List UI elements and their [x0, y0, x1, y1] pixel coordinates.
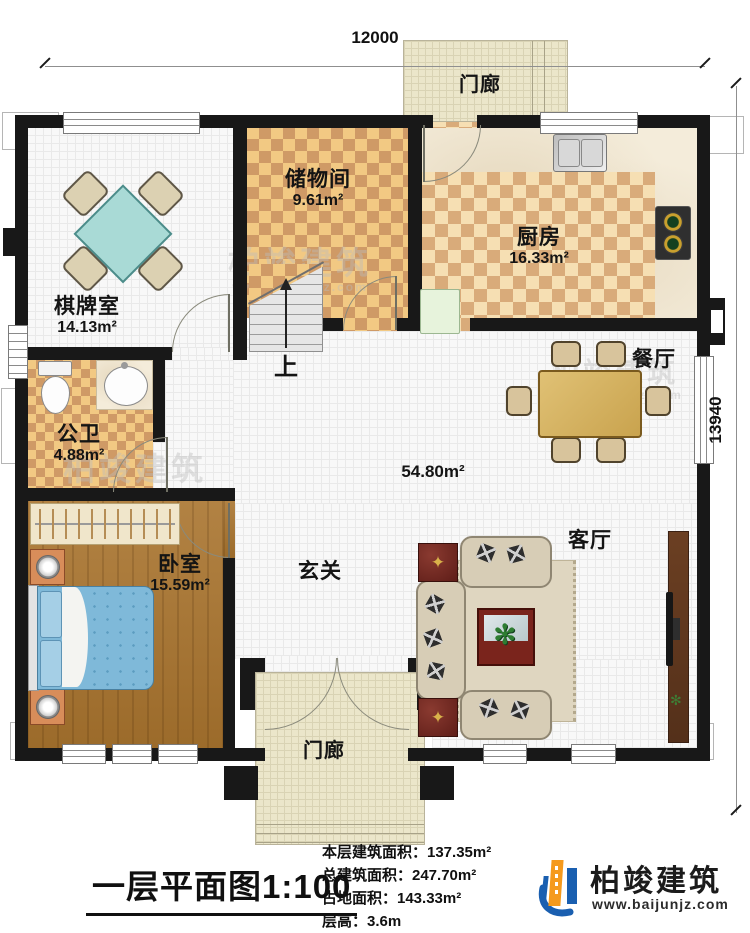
room-label-foyer: 玄关	[289, 560, 351, 584]
porch-column	[224, 766, 258, 800]
company-logo-url: www.baijunjz.com	[592, 896, 729, 912]
door-leaf	[228, 503, 230, 558]
plant-icon: ✻	[670, 692, 682, 709]
stairs-up-label: 上	[266, 354, 306, 382]
closet-hangers	[30, 503, 180, 545]
porch-step-lines	[532, 41, 533, 121]
dining-table	[538, 370, 642, 438]
company-logo-icon	[536, 854, 584, 918]
window	[8, 325, 28, 379]
door-leaf	[423, 125, 425, 182]
sofa	[460, 536, 552, 588]
chair	[551, 341, 581, 367]
kitchen-sink	[553, 134, 607, 172]
bed-pillow	[40, 640, 62, 687]
porch-steps	[256, 816, 424, 844]
sofa	[460, 690, 552, 740]
tv	[666, 592, 673, 666]
fridge	[420, 289, 460, 334]
nightstand	[30, 549, 65, 585]
wall	[15, 115, 28, 761]
stat-total-area: 总建筑面积：247.70m²	[322, 864, 491, 887]
window	[112, 744, 152, 764]
door-leaf	[228, 294, 230, 352]
plant-icon: ✻	[493, 618, 516, 651]
nightstand	[30, 689, 65, 725]
stairs-up-arrow	[285, 290, 287, 348]
window	[483, 744, 527, 764]
window	[62, 744, 106, 764]
room-label-chess: 棋牌室 14.13m²	[32, 295, 142, 338]
bed-sheet	[62, 587, 88, 687]
dimension-line-top	[45, 66, 705, 67]
compass-star-icon: ✦	[431, 553, 445, 572]
burner	[663, 212, 683, 232]
compass-star-icon: ✦	[431, 708, 445, 727]
chair	[645, 386, 671, 416]
hangers	[39, 509, 173, 539]
wall-pilaster	[3, 228, 15, 256]
window	[158, 744, 198, 764]
sink-basin	[558, 139, 580, 167]
stove	[655, 206, 691, 260]
room-label-porch-bottom: 门廊	[291, 740, 357, 763]
coffee-table: ✻	[477, 608, 535, 666]
window	[63, 112, 200, 134]
stat-floor-height: 层高：3.6m	[322, 910, 491, 933]
room-label-porch-top: 门廊	[447, 74, 513, 97]
hall-area-label: 54.80m²	[383, 462, 483, 482]
porch-step-lines	[544, 41, 545, 121]
plan-title: 一层平面图1:100	[86, 860, 357, 916]
wall	[153, 360, 165, 442]
dimension-tick	[699, 57, 710, 68]
wall	[408, 748, 710, 761]
sofa-pillow	[427, 662, 446, 681]
dimension-value-right: 13940	[706, 380, 726, 460]
wall	[233, 115, 247, 360]
tv-bracket	[673, 618, 680, 640]
room-label-living: 客厅	[558, 529, 622, 553]
window	[571, 744, 616, 764]
company-logo-name: 柏竣建筑	[590, 856, 722, 900]
door-leaf	[166, 437, 168, 492]
bed-blanket	[88, 587, 151, 687]
room-label-dining: 餐厅	[622, 348, 686, 372]
wall	[322, 318, 343, 331]
stat-footprint-area: 占地面积：143.33m²	[322, 887, 491, 910]
wall	[240, 658, 255, 710]
door-leaf	[395, 276, 397, 330]
lamp	[36, 695, 60, 719]
hall-floor	[165, 360, 233, 503]
floor-plan-page: 柏竣建筑 www.baijunjz.com 柏竣建筑 www.baijunjz.…	[0, 0, 750, 933]
sink-basin	[581, 139, 603, 167]
side-table: ✦	[418, 543, 458, 582]
room-label-bath: 公卫 4.88m²	[29, 423, 129, 466]
bed-pillow	[40, 591, 62, 638]
wall	[477, 115, 540, 128]
wall	[397, 318, 408, 331]
dimension-value-top: 12000	[320, 28, 430, 48]
toilet-tank	[38, 361, 72, 376]
wall-notch-inner	[711, 310, 723, 333]
porch-column	[420, 766, 454, 800]
plan-stats: 本层建筑面积：137.35m² 总建筑面积：247.70m² 占地面积：143.…	[322, 841, 491, 933]
room-label-kitchen: 厨房 16.33m²	[479, 226, 599, 269]
wall	[15, 347, 172, 360]
lamp	[36, 555, 60, 579]
chair	[551, 437, 581, 463]
bath-faucet	[121, 362, 128, 369]
bath-sink	[104, 366, 148, 406]
window	[540, 112, 638, 134]
burner	[663, 234, 683, 254]
stat-floor-area: 本层建筑面积：137.35m²	[322, 841, 491, 864]
room-label-bedroom: 卧室 15.59m²	[115, 553, 245, 596]
room-label-storage: 储物间 9.61m²	[258, 168, 378, 211]
wall	[470, 318, 697, 331]
chair	[596, 437, 626, 463]
stairs-up-arrowhead	[280, 278, 292, 290]
chair	[506, 386, 532, 416]
side-table: ✦	[418, 698, 458, 737]
dimension-line-right	[736, 86, 737, 813]
